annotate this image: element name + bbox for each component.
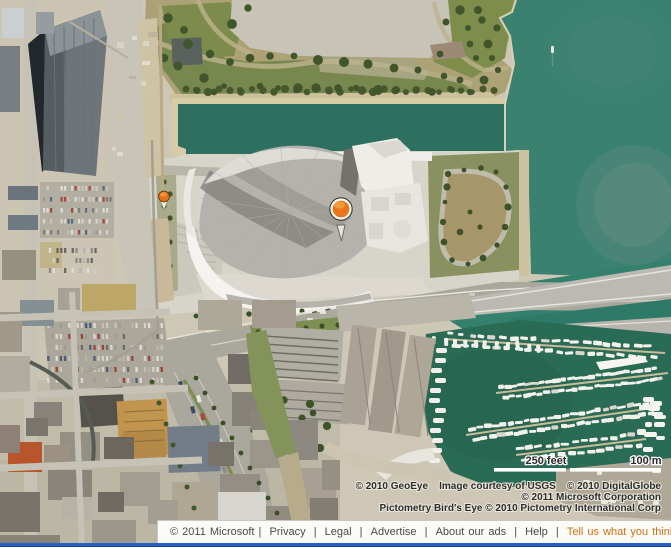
svg-text:© 2010 GeoEye Image courtes: © 2010 GeoEye Image courtesy of USGS © 2… <box>356 481 662 492</box>
svg-text:Pictometry Bird's Eye © 2010 P: Pictometry Bird's Eye © 2010 Pictometry … <box>380 503 662 514</box>
svg-text:100 m: 100 m <box>630 455 661 467</box>
svg-text:© 2011 Microsoft Corporation: © 2011 Microsoft Corporation <box>521 492 661 503</box>
svg-text:250 feet: 250 feet <box>526 455 567 467</box>
